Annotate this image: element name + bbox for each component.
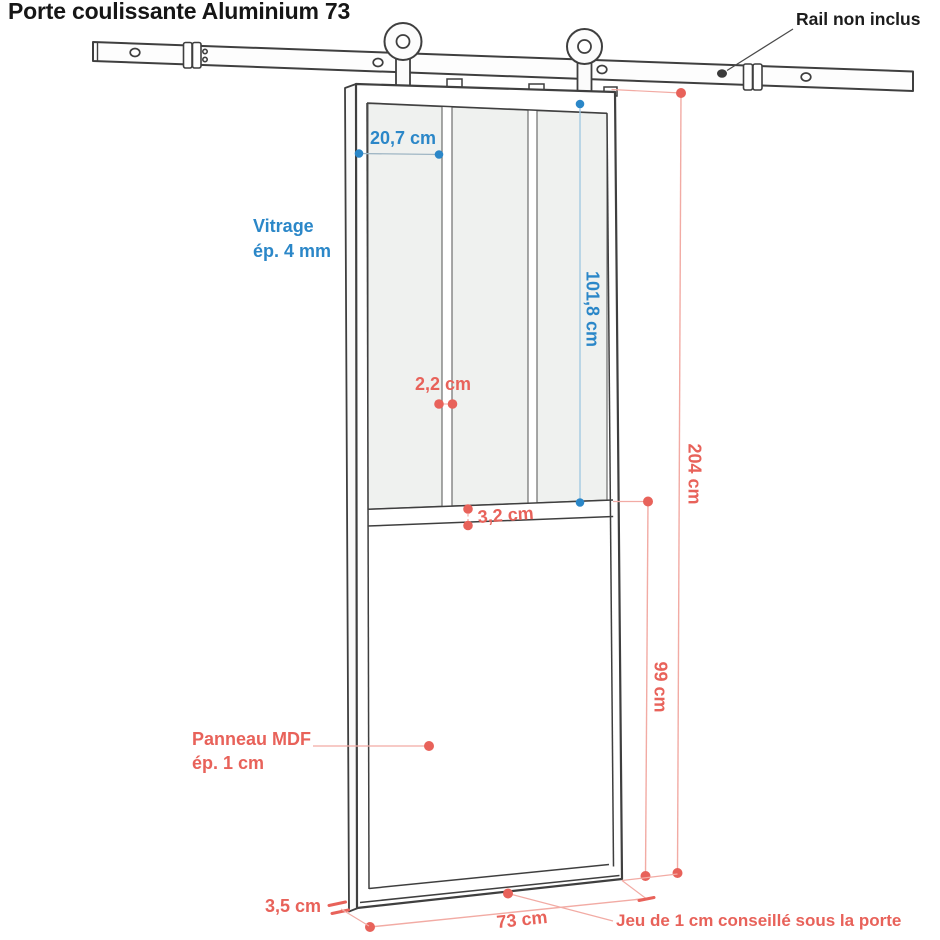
roller-hub bbox=[578, 40, 591, 53]
glazing-label: Vitrage ép. 4 mm bbox=[253, 214, 331, 264]
glass-pane-2 bbox=[452, 107, 528, 506]
glass-pane-1 bbox=[368, 104, 442, 510]
roller-hub bbox=[397, 35, 410, 48]
door-diagram bbox=[0, 0, 940, 940]
pane-width-label: 20,7 cm bbox=[360, 128, 446, 149]
diagram-page: Porte coulissante Aluminium 73 Rail non … bbox=[0, 0, 940, 940]
glass-panes bbox=[368, 104, 607, 510]
rail-not-included-label: Rail non inclus bbox=[796, 9, 920, 30]
door-height-label: 204 cm bbox=[684, 443, 705, 504]
panel-height-label: 99 cm bbox=[650, 661, 671, 712]
frame-width-label: 3,5 cm bbox=[265, 896, 321, 917]
glazing-label-line2: ép. 4 mm bbox=[253, 239, 331, 264]
sliding-rail bbox=[93, 42, 913, 91]
rail-hole-marked bbox=[717, 69, 727, 78]
glass-height-label: 101,8 cm bbox=[582, 271, 603, 347]
glazing-label-line1: Vitrage bbox=[253, 214, 331, 239]
mdf-panel-label-line2: ép. 1 cm bbox=[192, 751, 311, 775]
rail-connector-right bbox=[744, 64, 763, 90]
muntin-width-label: 2,2 cm bbox=[405, 374, 481, 395]
page-title: Porte coulissante Aluminium 73 bbox=[8, 0, 350, 25]
dim-door-height-204 bbox=[612, 88, 687, 878]
mid-rail-height-label: 3,2 cm bbox=[477, 503, 534, 528]
mdf-panel-label-line1: Panneau MDF bbox=[192, 727, 311, 751]
mdf-panel-label: Panneau MDF ép. 1 cm bbox=[192, 727, 311, 775]
rail-bar bbox=[93, 42, 913, 91]
gap-advice-label: Jeu de 1 cm conseillé sous la porte bbox=[616, 911, 901, 931]
